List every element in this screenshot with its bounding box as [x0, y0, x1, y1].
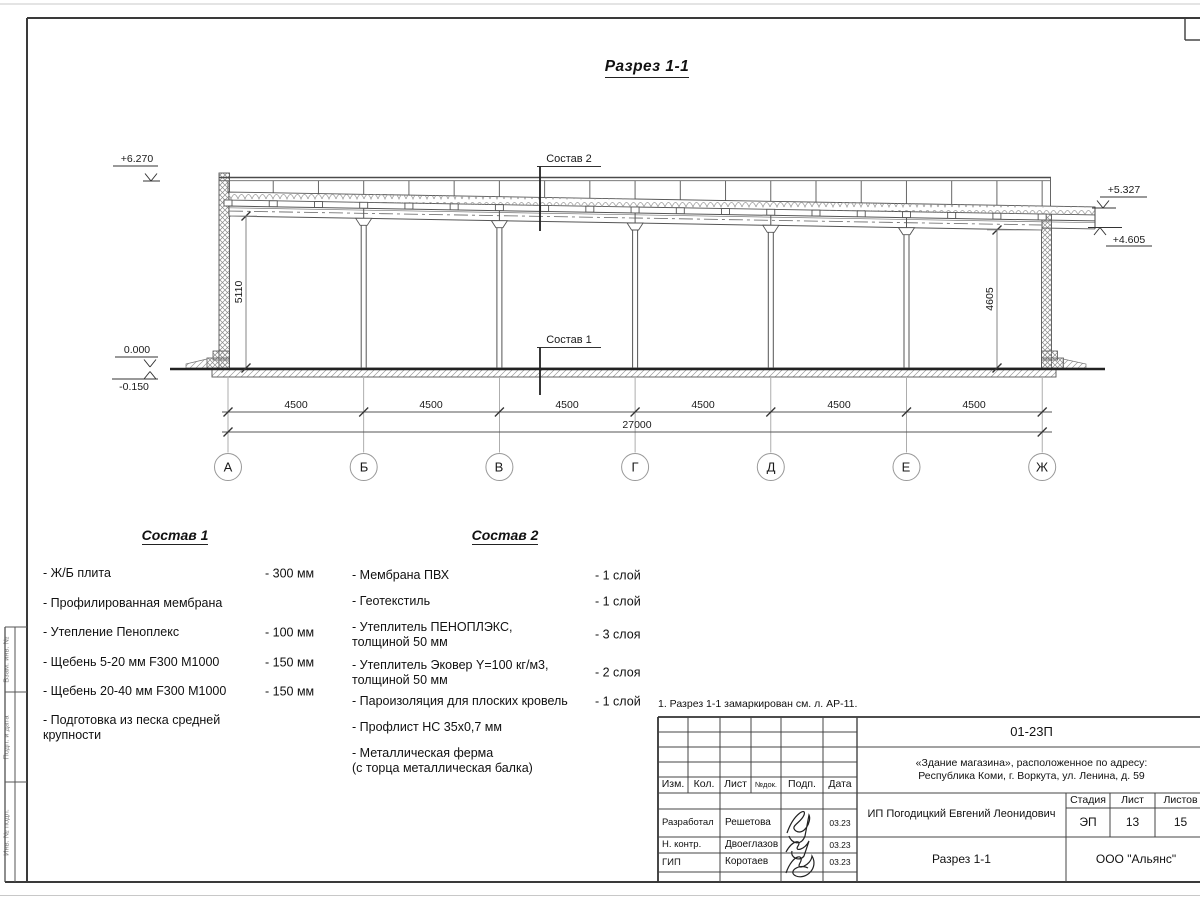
col-header-ndok: №док.: [751, 777, 781, 793]
date-ncontrol: 03.23: [823, 837, 857, 853]
sheet-note: 1. Разрез 1-1 замаркирован см. л. АР-11.: [658, 698, 857, 710]
page-title: Разрез 1-1: [557, 58, 737, 76]
axis-bubble-label: А: [224, 460, 233, 475]
axis-bubble-label: Б: [360, 460, 369, 475]
axis-bubble-label: Е: [902, 460, 911, 475]
list-item: - Щебень 5-20 мм F300 М1000- 150 мм: [43, 655, 333, 671]
sheet-header: Лист: [1111, 793, 1154, 808]
bay-dim: 4500: [419, 399, 443, 411]
sheets-total: 15: [1156, 808, 1200, 837]
role-gip: ГИП: [659, 853, 722, 872]
comp2-list: - Мембрана ПВХ- 1 слой - Геотекстиль- 1 …: [352, 560, 672, 790]
col-header-kol: Кол.: [688, 777, 720, 793]
list-item: - Профилированная мембрана: [43, 596, 333, 612]
list-item: - Подготовка из песка средней крупности: [43, 713, 333, 743]
role-ncontrol: Н. контр.: [659, 837, 722, 853]
signature-ncontrol: [786, 841, 809, 859]
date-gip: 03.23: [823, 853, 857, 872]
elevation-zero: 0.000: [124, 344, 150, 356]
list-item: - Утеплитель Эковер Y=100 кг/м3, толщино…: [352, 658, 662, 688]
client-name: ИП Погодицкий Евгений Леонидович: [858, 794, 1065, 836]
col-header-podp: Подп.: [781, 777, 823, 793]
comp1-header: Состав 1: [43, 527, 307, 543]
axis-bubble-label: Г: [631, 460, 638, 475]
vertical-dim-right: 4605: [984, 287, 996, 311]
signature-gip: [786, 856, 814, 877]
side-stamp-label: Подп. и дата: [2, 698, 11, 778]
side-stamp-label: Инв. № подл.: [2, 793, 11, 873]
company-name: ООО "Альянс": [1067, 838, 1200, 881]
vertical-dim-left: 5110: [233, 281, 245, 304]
axis-bubble-label: Ж: [1036, 460, 1048, 475]
bay-dim: 4500: [962, 399, 986, 411]
col-header-list: Лист: [720, 777, 751, 793]
bay-dim: 4500: [827, 399, 851, 411]
axis-bubble-label: Д: [767, 460, 776, 475]
list-item: - Щебень 20-40 мм F300 М1000- 150 мм: [43, 684, 333, 700]
axis-bubble-label: В: [495, 460, 504, 475]
elevation-top-left: +6.270: [121, 153, 154, 165]
drawing-sheet: Разрез 1-1 Состав 1 - Ж/Б плита- 300 мм …: [0, 0, 1200, 900]
role-developer: Разработал: [659, 809, 722, 837]
list-item: - Пароизоляция для плоских кровель- 1 сл…: [352, 694, 662, 710]
comp2-header: Состав 2: [352, 527, 658, 543]
col-header-izm: Изм.: [658, 777, 688, 793]
name-developer: Решетова: [722, 809, 783, 837]
stage-header: Стадия: [1067, 793, 1109, 808]
list-item: - Утеплитель ПЕНОПЛЭКС, толщиной 50 мм- …: [352, 620, 662, 650]
sheets-header: Листов: [1156, 793, 1200, 808]
list-item: - Ж/Б плита- 300 мм: [43, 566, 333, 582]
side-stamp-label: Взам. инв. №: [2, 620, 11, 700]
elevation-right-upper: +5.327: [1108, 184, 1141, 196]
project-address: «Здание магазина», расположенное по адре…: [858, 748, 1200, 792]
comp1-list: - Ж/Б плита- 300 мм - Профилированная ме…: [43, 560, 343, 770]
date-developer: 03.23: [823, 809, 857, 837]
list-item: - Геотекстиль- 1 слой: [352, 594, 662, 610]
bay-dim: 4500: [555, 399, 579, 411]
name-gip: Коротаев: [722, 853, 783, 872]
elevation-right-lower: +4.605: [1113, 234, 1146, 246]
list-item: - Утепление Пеноплекс- 100 мм: [43, 625, 333, 641]
sostav2-label: Состав 2: [546, 153, 592, 165]
section-title-text: Разрез 1-1: [605, 58, 690, 78]
elevation-below-zero: -0.150: [119, 381, 149, 393]
doc-number: 01-23П: [858, 718, 1200, 747]
stage-value: ЭП: [1067, 808, 1109, 837]
total-dim: 27000: [622, 419, 651, 431]
signature-scribbles: [786, 812, 814, 877]
signature-developer: [787, 812, 810, 843]
list-item: - Профлист НС 35х0,7 мм: [352, 720, 662, 736]
bay-dim: 4500: [691, 399, 715, 411]
sheet-number: 13: [1111, 808, 1154, 837]
list-item: - Мембрана ПВХ- 1 слой: [352, 568, 662, 584]
drawing-title: Разрез 1-1: [858, 838, 1065, 881]
col-header-data: Дата: [823, 777, 857, 793]
bay-dim: 4500: [284, 399, 308, 411]
list-item: - Металлическая ферма (с торца металличе…: [352, 746, 662, 776]
sostav1-label: Состав 1: [546, 334, 592, 346]
name-ncontrol: Двоеглазов: [722, 837, 783, 853]
